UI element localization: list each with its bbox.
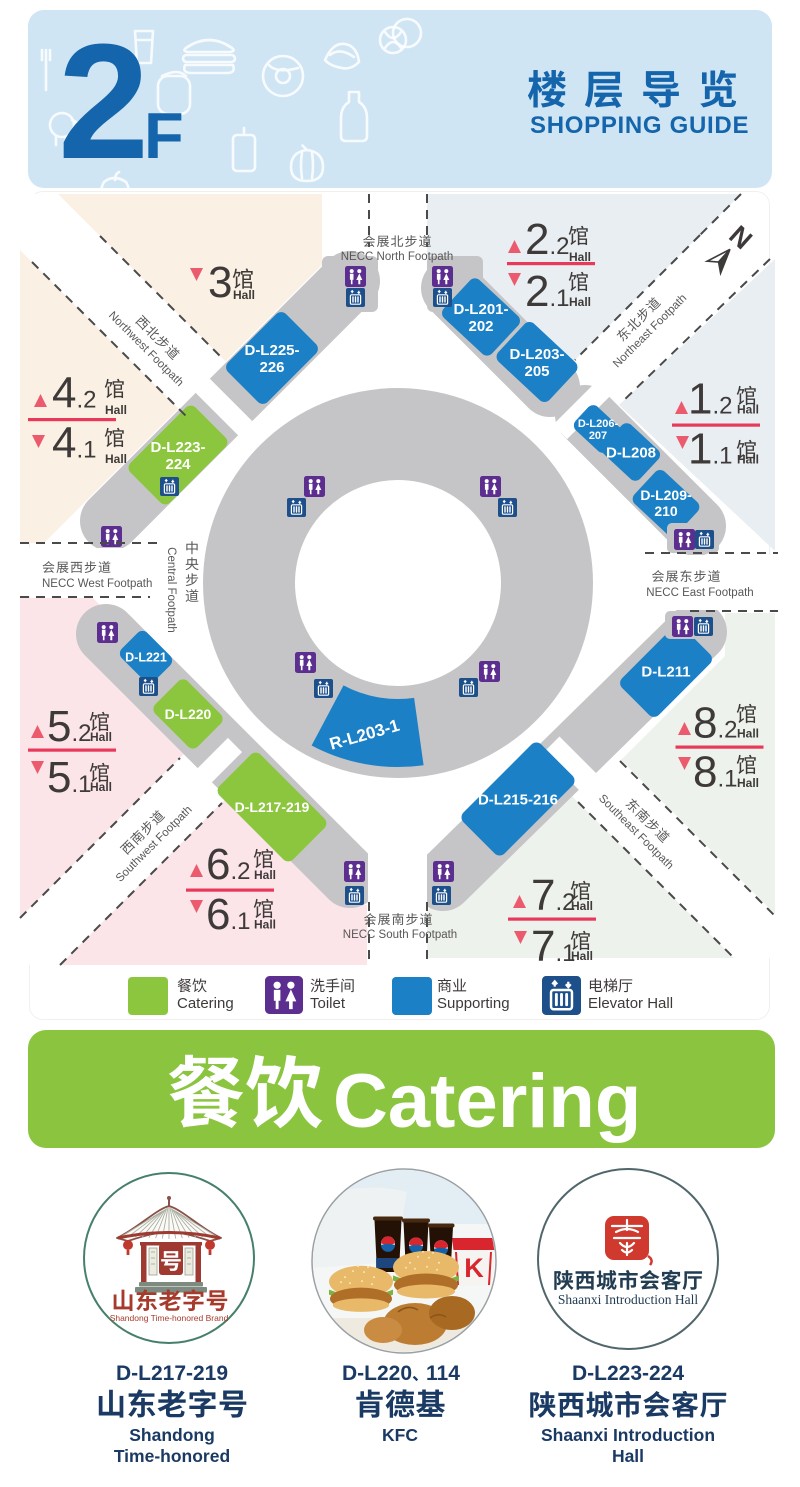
svg-text:Hall: Hall (737, 453, 759, 467)
svg-text:NECC East Footpath: NECC East Footpath (646, 587, 753, 599)
svg-text:D-L209-: D-L209- (640, 487, 692, 503)
svg-text:Hall: Hall (254, 868, 276, 882)
svg-text:Catering: Catering (177, 995, 234, 1012)
svg-text:Hall: Hall (254, 918, 276, 932)
svg-text:Shandong Time-honored Brand: Shandong Time-honored Brand (110, 1313, 229, 1323)
svg-text:Elevator Hall: Elevator Hall (588, 995, 673, 1012)
svg-text:Hall: Hall (737, 776, 759, 790)
svg-text:NECC North Footpath: NECC North Footpath (341, 251, 454, 263)
svg-text:Hall: Hall (737, 726, 759, 740)
svg-text:D-L225-: D-L225- (244, 342, 299, 359)
svg-text:202: 202 (468, 318, 493, 335)
svg-text:D-L211: D-L211 (641, 663, 690, 680)
svg-text:Hall: Hall (233, 288, 255, 302)
svg-text:Hall: Hall (737, 403, 759, 417)
svg-text:D-L215-216: D-L215-216 (478, 791, 558, 808)
svg-text:Hall: Hall (90, 780, 112, 794)
svg-text:Catering: Catering (333, 1059, 641, 1144)
svg-text:205: 205 (524, 363, 549, 380)
svg-text:D-L217-219: D-L217-219 (116, 1362, 228, 1385)
svg-text:Shaanxi Introduction: Shaanxi Introduction (541, 1425, 715, 1445)
svg-text:Hall: Hall (569, 295, 591, 309)
svg-text:226: 226 (259, 359, 284, 376)
svg-text:D-L206-: D-L206- (578, 418, 619, 430)
svg-text:Hall: Hall (612, 1446, 644, 1466)
svg-text:D-L223-224: D-L223-224 (572, 1362, 684, 1385)
svg-text:Toilet: Toilet (310, 995, 346, 1012)
svg-text:Shaanxi Introduction Hall: Shaanxi Introduction Hall (558, 1292, 698, 1307)
svg-text:Time-honored: Time-honored (114, 1446, 230, 1466)
svg-text:D-L220: D-L220 (165, 706, 212, 722)
svg-text:D-L201-: D-L201- (453, 301, 508, 318)
svg-text:Hall: Hall (571, 899, 593, 913)
svg-text:Shandong: Shandong (129, 1425, 215, 1445)
svg-text:KFC: KFC (382, 1425, 418, 1445)
svg-text:D-L203-: D-L203- (509, 346, 564, 363)
svg-text:Central Footpath: Central Footpath (165, 547, 177, 633)
svg-text:210: 210 (654, 503, 678, 519)
svg-text:224: 224 (165, 456, 191, 473)
svg-text:D-L208: D-L208 (606, 444, 656, 461)
svg-text:Hall: Hall (90, 730, 112, 744)
svg-text:K: K (464, 1253, 484, 1283)
svg-text:NECC West Footpath: NECC West Footpath (42, 578, 152, 590)
svg-text:NECC South Footpath: NECC South Footpath (343, 929, 457, 941)
svg-text:SHOPPING GUIDE: SHOPPING GUIDE (530, 112, 749, 139)
svg-text:D-L221: D-L221 (125, 650, 167, 664)
svg-text:Hall: Hall (105, 403, 127, 417)
svg-text:D-L217-219: D-L217-219 (235, 799, 310, 815)
svg-text:114: 114 (426, 1362, 460, 1385)
svg-text:207: 207 (589, 430, 607, 442)
svg-text:D-L220: D-L220 (342, 1362, 412, 1385)
svg-text:Supporting: Supporting (437, 995, 510, 1012)
svg-text:Hall: Hall (571, 949, 593, 963)
svg-text:Hall: Hall (569, 250, 591, 264)
svg-text:3: 3 (208, 258, 232, 307)
svg-text:D-L223-: D-L223- (150, 439, 205, 456)
svg-text:Hall: Hall (105, 452, 127, 466)
